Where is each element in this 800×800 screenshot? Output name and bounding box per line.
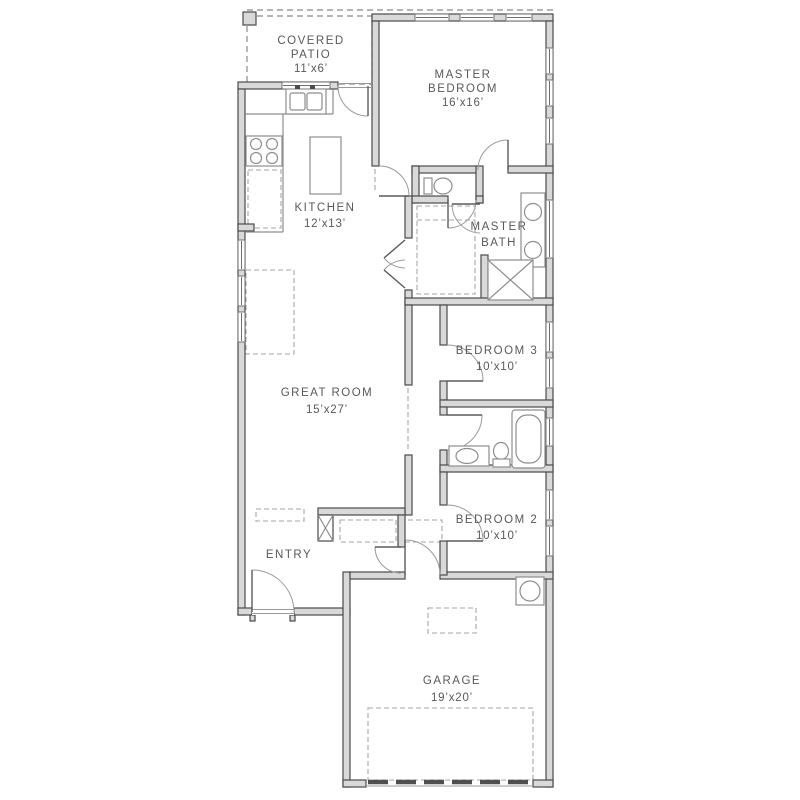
wall-segment xyxy=(508,166,553,173)
door-entry-hall xyxy=(375,547,401,573)
mud-bench-dashed xyxy=(340,520,396,542)
patio-post xyxy=(243,12,256,25)
room-label-kitchen: KITCHEN xyxy=(295,202,356,214)
wall-segment xyxy=(440,472,447,505)
door-sills xyxy=(252,84,533,787)
window xyxy=(546,358,553,388)
wall-segment xyxy=(440,381,447,400)
wall-segment xyxy=(440,400,553,407)
wall-segment xyxy=(294,608,350,615)
window xyxy=(238,276,245,306)
wall-segment xyxy=(343,780,366,787)
room-label-entry: ENTRY xyxy=(266,549,312,561)
kitchen-sink xyxy=(286,85,326,114)
wall-segment xyxy=(405,305,412,385)
window xyxy=(460,14,494,21)
room-dims-garage: 19’x20’ xyxy=(431,692,473,704)
wall-segment xyxy=(405,196,412,238)
window xyxy=(238,240,245,270)
door-front xyxy=(252,570,294,612)
master-toilet xyxy=(424,178,452,194)
window xyxy=(546,118,553,144)
kitchen-island xyxy=(310,137,341,194)
room-label-bedroom-2: BEDROOM 2 xyxy=(456,514,539,526)
storage-dashed xyxy=(428,608,476,633)
wall-segment xyxy=(476,196,483,203)
room-label-garage: GARAGE xyxy=(423,675,481,687)
hall-bath-vanity xyxy=(449,446,489,466)
window xyxy=(546,490,553,520)
room-dims-kitchen: 12’x13’ xyxy=(304,218,346,230)
wall-segment xyxy=(238,89,245,615)
room-label-master-bedroom-2: BEDROOM xyxy=(428,83,498,95)
mud-locker-dashed xyxy=(400,520,442,542)
window xyxy=(238,312,245,342)
wall-segment xyxy=(440,541,447,575)
window xyxy=(546,200,553,258)
built-in-dashed xyxy=(246,270,294,354)
door-garage-entry xyxy=(405,540,440,575)
room-label-covered-patio: COVERED xyxy=(277,35,344,47)
cooktop xyxy=(246,136,282,166)
wall-segment xyxy=(372,21,379,166)
coat-closet xyxy=(318,515,333,541)
double-doors-great-room xyxy=(384,240,405,288)
porch-stub xyxy=(290,615,295,621)
door-hall-bath xyxy=(447,415,482,450)
room-dims-bedroom-3: 10’x10’ xyxy=(476,361,518,373)
shower xyxy=(488,260,533,300)
room-label-bedroom-3: BEDROOM 3 xyxy=(456,345,539,357)
door-kitchen-patio xyxy=(338,86,368,116)
wall-segment xyxy=(440,305,447,345)
wall-segment xyxy=(343,572,350,787)
bathtub xyxy=(512,410,545,468)
wall-segment xyxy=(318,508,405,515)
parking-area-dashed xyxy=(368,708,533,780)
room-labels: COVERED PATIO 11’x6’ MASTER BEDROOM 16’x… xyxy=(266,35,538,704)
window xyxy=(506,14,532,21)
wall-segment xyxy=(238,608,252,615)
room-dims-great-room: 15’x27’ xyxy=(306,404,348,416)
window xyxy=(546,80,553,106)
room-label-master-bath: MASTER xyxy=(471,221,528,233)
window xyxy=(546,48,553,74)
porch-stub xyxy=(250,615,255,621)
room-label-great-room: GREAT ROOM xyxy=(281,387,374,399)
wall-segment xyxy=(440,407,447,415)
room-label-master-bath-2: BATH xyxy=(481,237,517,249)
window xyxy=(546,418,553,446)
wall-segment xyxy=(481,255,488,302)
room-label-master-bedroom: MASTER xyxy=(435,69,492,81)
master-closet-shelves xyxy=(417,206,475,294)
window xyxy=(546,322,553,352)
wall-segment xyxy=(412,166,478,173)
wall-segment xyxy=(412,196,448,203)
window xyxy=(546,526,553,556)
room-label-covered-patio-2: PATIO xyxy=(291,49,331,61)
entry-niche-dashed xyxy=(256,509,304,521)
floor-plan: COVERED PATIO 11’x6’ MASTER BEDROOM 16’x… xyxy=(0,0,800,800)
room-dims-bedroom-2: 10’x10’ xyxy=(476,530,518,542)
walls xyxy=(238,12,553,787)
room-dims-master-bedroom: 16’x16’ xyxy=(442,97,484,109)
wall-segment xyxy=(405,455,412,515)
wall-segment xyxy=(238,224,254,231)
door-master-suite xyxy=(379,166,409,196)
room-dims-covered-patio: 11’x6’ xyxy=(294,63,328,75)
cabinet-dashed xyxy=(248,170,281,228)
window xyxy=(415,14,449,21)
wall-segment xyxy=(398,515,405,547)
hall-bath-toilet xyxy=(493,443,510,468)
water-heater xyxy=(516,577,544,605)
window xyxy=(282,82,330,89)
wall-segment xyxy=(533,780,553,787)
